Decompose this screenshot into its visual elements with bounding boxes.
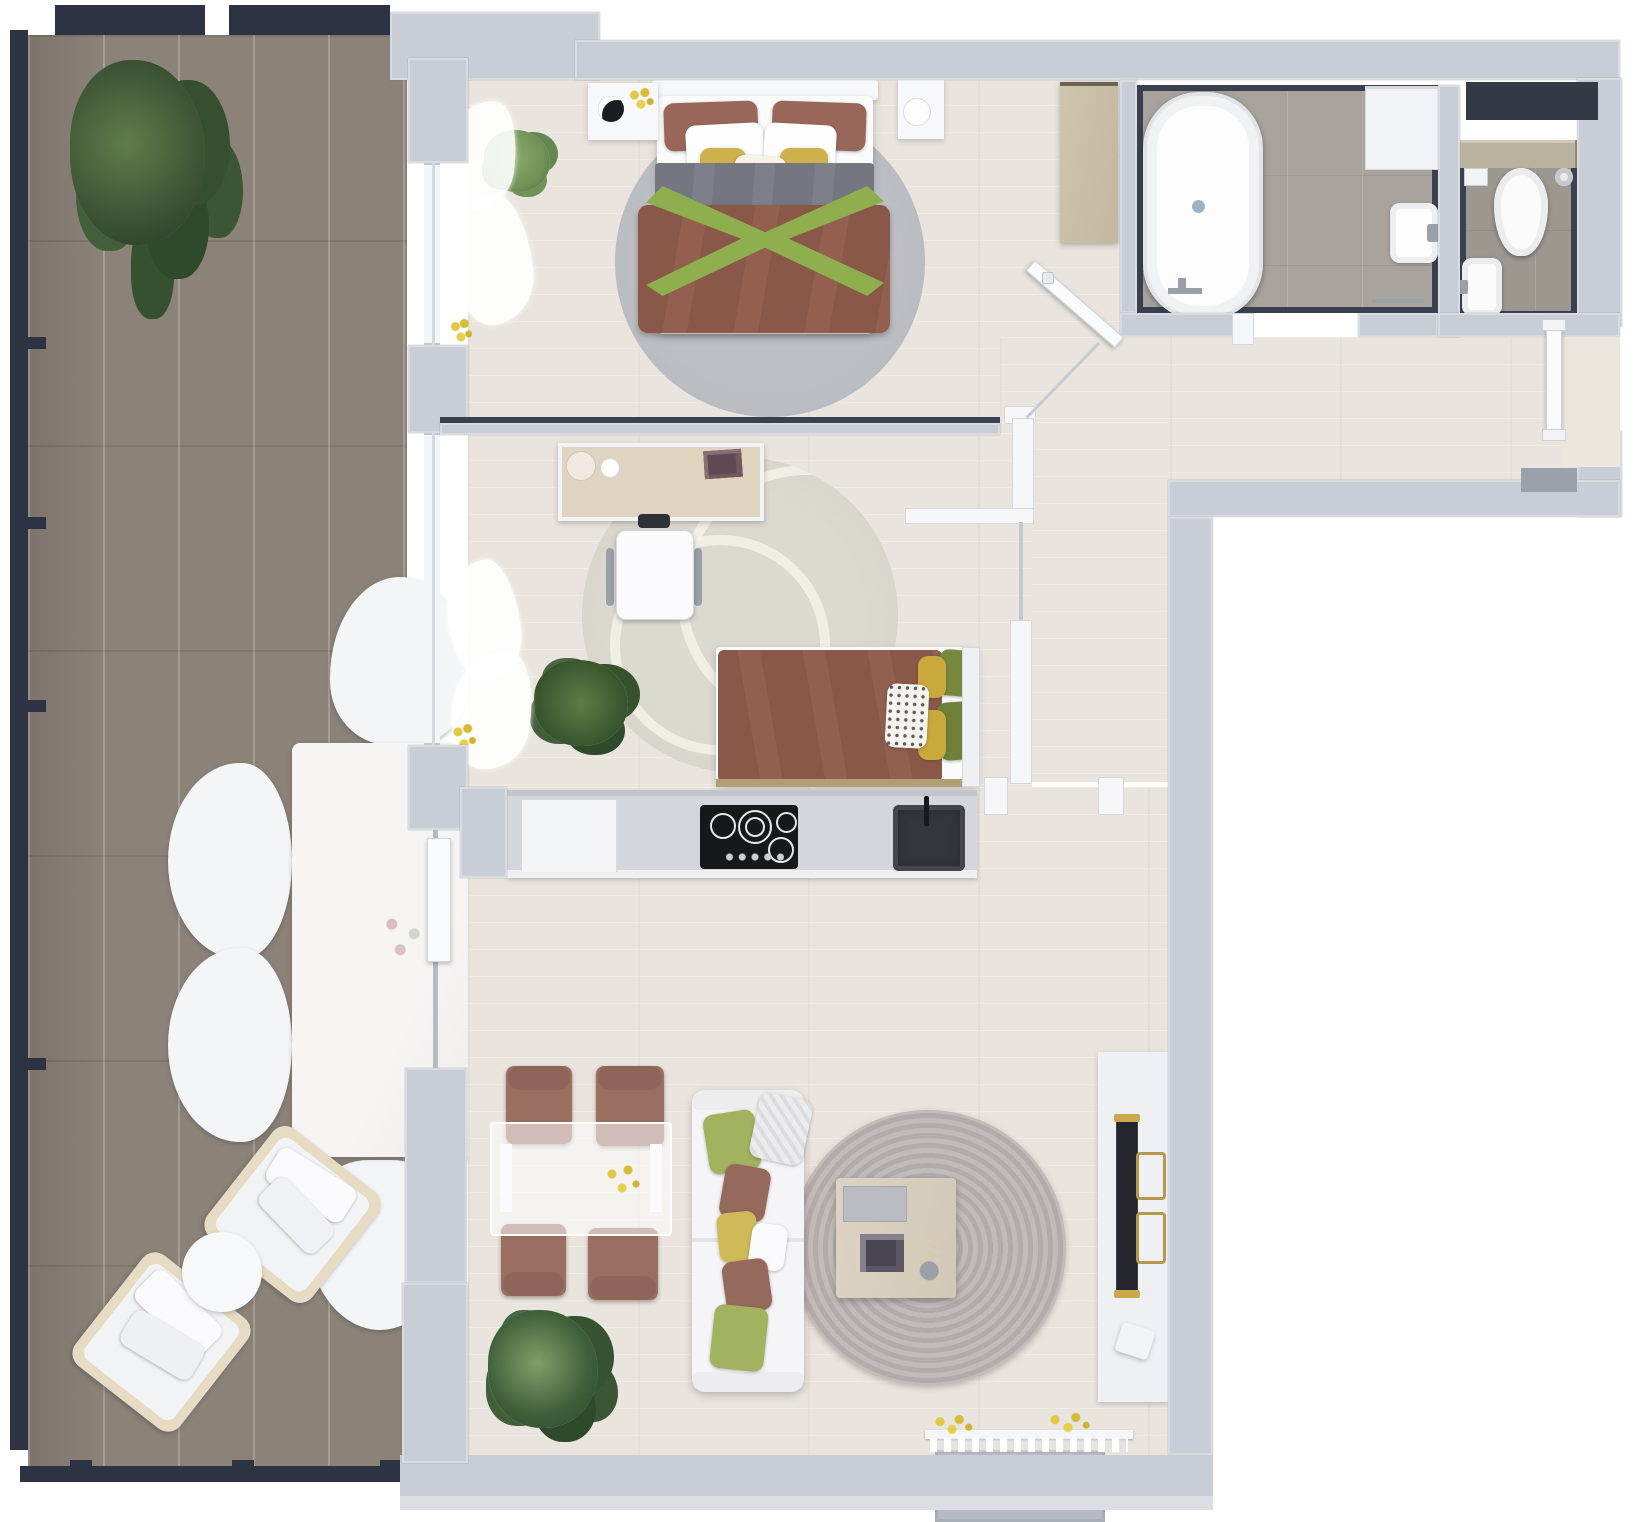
- door-jamb: [984, 777, 1008, 815]
- railing-post: [28, 1058, 46, 1070]
- bidet-sink: [1462, 258, 1502, 316]
- lounge-side-table: [182, 1232, 262, 1312]
- wall-bath-wc-divider: [1438, 85, 1460, 337]
- wall-bath-bottom-left: [1120, 313, 1240, 337]
- bed2-pillow-patterned: [884, 683, 929, 749]
- bathtub-faucet-knob: [1178, 278, 1186, 288]
- tv-panel: [1117, 1120, 1137, 1292]
- toilet-paper-holder: [1464, 168, 1488, 186]
- sill-flowers: [450, 316, 472, 346]
- window-glass-line: [432, 433, 435, 745]
- balcony-plant-icon: [70, 60, 205, 245]
- chair-arm-right: [694, 548, 702, 606]
- glass-partition-post-bottom: [1010, 620, 1032, 784]
- table-tray: [843, 1186, 907, 1222]
- entrance-door: [1546, 327, 1562, 433]
- wall-top: [575, 40, 1620, 80]
- wall-bath-left: [1120, 80, 1137, 313]
- bed2-side-rail: [716, 779, 978, 787]
- palm-plant-icon: [534, 660, 628, 746]
- sill-flowers: [1042, 1412, 1094, 1434]
- bathtub-faucet: [1168, 288, 1202, 294]
- table-book: [860, 1234, 904, 1272]
- bowl-decor: [903, 98, 931, 126]
- desk-tray: [566, 451, 596, 481]
- tv-cap-top: [1114, 1114, 1140, 1122]
- railing-post: [28, 337, 46, 349]
- curtain-sheers: [930, 1438, 1128, 1452]
- table-centerpiece: [375, 905, 431, 969]
- office-chair: [606, 514, 702, 626]
- burner-double: [738, 810, 772, 844]
- wall-bedroom-divider: [440, 423, 1000, 435]
- cooktop-knobs: [726, 853, 784, 861]
- wall-left-c: [408, 745, 468, 830]
- wall-left-a: [408, 58, 468, 163]
- bed2-frame-end: [962, 647, 980, 787]
- kitchen-sink: [893, 805, 965, 871]
- glass-partition-beam: [905, 508, 1034, 524]
- wall-living-bottom: [400, 1455, 1213, 1510]
- kitchen-cabinet-white: [522, 800, 618, 872]
- wall-left-pillar: [405, 1068, 467, 1283]
- burner: [776, 812, 797, 833]
- window-glass-line: [432, 163, 435, 345]
- wall-bath-bottom-right: [1358, 313, 1438, 337]
- wall-wc-bottom: [1438, 313, 1620, 337]
- tv-cap-bottom: [1114, 1290, 1140, 1298]
- tulip-bouquet: [602, 1160, 642, 1200]
- table-runner: [650, 1144, 662, 1212]
- nightstand-decor: [628, 86, 654, 112]
- entrance-door-frame-bottom: [1542, 429, 1566, 441]
- railing-post: [380, 1460, 400, 1476]
- wall-kitchen-pillar: [460, 787, 507, 878]
- dark-wardrobe-niche: [1466, 82, 1598, 120]
- desk-magazine: [703, 449, 743, 480]
- entrance-door-frame-top: [1542, 319, 1566, 331]
- hall-sideboard: [1060, 82, 1118, 243]
- wall-left-e: [402, 1283, 468, 1463]
- wc-vanity: [1460, 140, 1577, 168]
- living-plant-icon: [488, 1310, 598, 1428]
- bathtub-drain: [1192, 200, 1205, 213]
- bathroom-door-jamb: [1232, 313, 1254, 345]
- towel-rail: [1372, 299, 1424, 303]
- floor-plan: [0, 0, 1634, 1522]
- chair-arm-left: [606, 548, 614, 606]
- balcony-railing-left: [10, 30, 28, 1450]
- sill-flowers: [928, 1414, 976, 1436]
- entrance-landing: [1562, 337, 1620, 467]
- sliding-door-panel: [427, 838, 451, 962]
- coffee-table: [836, 1178, 956, 1298]
- chair-seat: [616, 530, 694, 620]
- door-jamb: [1098, 777, 1124, 815]
- desk-cup: [600, 458, 620, 478]
- vase-black: [598, 96, 624, 122]
- toilet-brush: [1555, 168, 1573, 186]
- glass-partition-pane: [1019, 522, 1023, 620]
- door-handle: [1042, 272, 1054, 284]
- washing-machine: [1365, 86, 1440, 170]
- railing-post: [28, 517, 46, 529]
- table-runner: [500, 1144, 512, 1212]
- cooktop: [700, 805, 798, 869]
- railing-post: [28, 700, 46, 712]
- balcony-wall-top-right: [229, 5, 390, 35]
- sink-faucet: [924, 796, 929, 826]
- burner: [710, 813, 736, 839]
- railing-post: [70, 1460, 92, 1480]
- glass-dining-table: [490, 1122, 672, 1236]
- chair-headrest: [638, 514, 670, 528]
- doormat: [1521, 468, 1577, 492]
- dining-chair-br: [588, 1228, 658, 1300]
- tv-bracket: [1136, 1152, 1166, 1200]
- table-decor: [904, 1240, 940, 1284]
- wall-living-right: [1168, 517, 1213, 1455]
- balcony-wall-top-left: [55, 5, 205, 35]
- sofa-pillow-green-2: [709, 1303, 769, 1372]
- tv-bracket: [1136, 1212, 1166, 1264]
- railing-post: [232, 1460, 254, 1480]
